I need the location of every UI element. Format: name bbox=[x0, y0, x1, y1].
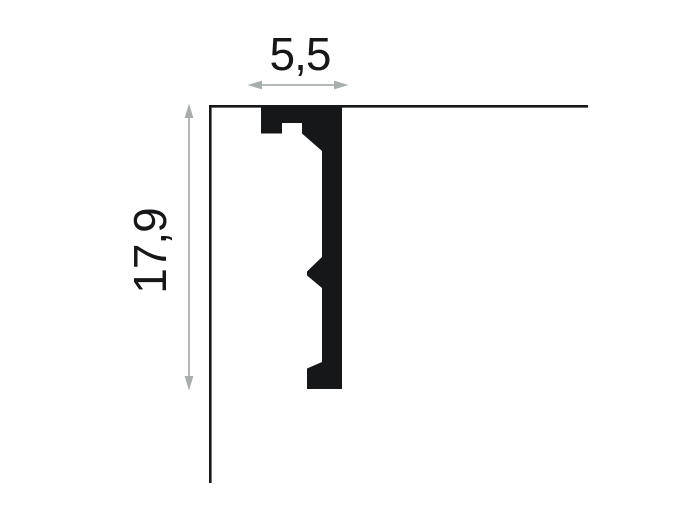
profile-dimension-diagram: 5,5 17,9 bbox=[0, 0, 700, 525]
width-arrow-left-head-icon bbox=[248, 81, 263, 90]
width-dimension-arrow bbox=[248, 81, 349, 90]
height-arrow-bottom-head-icon bbox=[185, 376, 194, 391]
width-dimension-label: 5,5 bbox=[270, 28, 331, 80]
diagram-canvas: 5,5 17,9 bbox=[0, 0, 700, 525]
height-dimension-arrow bbox=[185, 104, 194, 391]
height-arrow-top-head-icon bbox=[185, 104, 194, 119]
height-dimension-label: 17,9 bbox=[124, 208, 176, 294]
width-arrow-right-head-icon bbox=[334, 81, 349, 90]
ceiling-and-wall-line bbox=[210, 106, 588, 483]
molding-profile-silhouette bbox=[261, 106, 342, 389]
